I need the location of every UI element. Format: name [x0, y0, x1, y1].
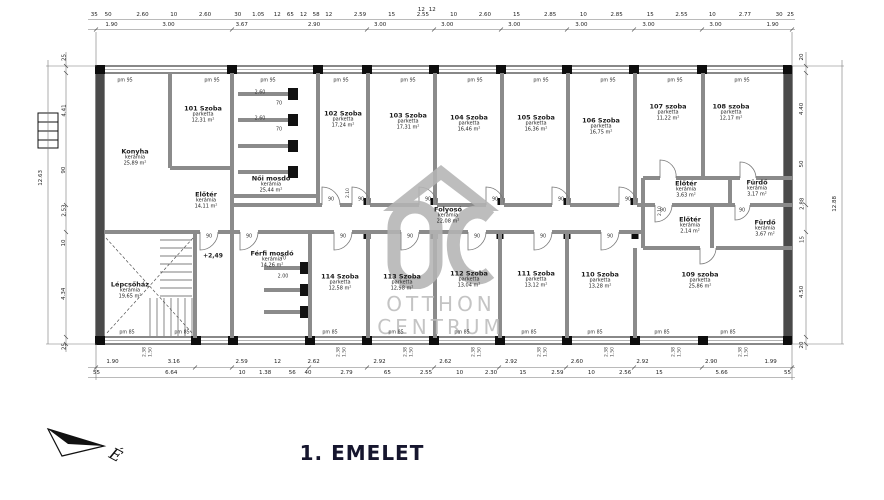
dimension-value: 4.40 — [755, 103, 849, 115]
window-parapet-label: pm 85 — [521, 331, 536, 336]
dimension-value: 2.56 — [596, 370, 655, 376]
room-label-109: 109 szoba parketta 25,86 m² — [682, 272, 719, 291]
dimension-value: 15 — [654, 370, 664, 376]
room-label-ferfi-mosdo: Férfi mosdó kerámia 14,26 m² — [250, 251, 293, 270]
dimension-value: 25 — [58, 340, 69, 352]
dimension-value: 2.62 — [282, 359, 345, 365]
door-width-label: 90 — [425, 198, 431, 203]
door-width-label: 90 — [358, 198, 364, 203]
room-label-101: 101 Szoba parketta 12,31 m² — [184, 106, 222, 125]
room-area: 13,12 m² — [517, 284, 555, 290]
dimension-value: 3.00 — [481, 22, 548, 28]
dimension-value: 2.88 — [770, 198, 833, 210]
sill-dim: 1.50 — [611, 347, 616, 357]
dimension-chain-bottom-2: 556.64101.3856402.79652.55102.30152.5910… — [88, 370, 796, 376]
dimension-value: 12 — [273, 359, 282, 365]
sill-dims: 2.38 1.50 — [739, 347, 750, 357]
dimension-value: 2.55 — [396, 12, 449, 18]
sill-dims: 2.38 1.50 — [605, 347, 616, 357]
door-width-label: 90 — [540, 235, 546, 240]
dimension-chain-top-1: 35502.60102.60301.0512651258122.59152.55… — [88, 12, 796, 18]
room-label-eloter-lower: Előtér kerámia 2,14 m² — [679, 217, 701, 236]
otthon-centrum-logo-icon — [366, 163, 516, 289]
stall-dim-label: 70 — [276, 128, 282, 133]
north-label: É — [105, 442, 126, 466]
dimension-chain-bottom-1: 1.903.162.59122.622.922.622.922.602.922.… — [88, 359, 796, 365]
room-label-113: 113 Szoba parketta 12,98 m² — [383, 274, 421, 293]
room-label-furdo-upper: Fürdő kerámia 3,17 m² — [746, 180, 767, 199]
floor-title: 1. EMELET — [262, 441, 462, 465]
dimension-value: 1.90 — [88, 22, 135, 28]
window-parapet-label: pm 95 — [204, 79, 219, 84]
window-parapet-label: pm 95 — [533, 79, 548, 84]
dimension-value: 50 — [794, 158, 810, 170]
dimension-value: 10 — [169, 12, 178, 18]
dimension-value: 1.99 — [745, 359, 796, 365]
window-parapet-label: pm 85 — [388, 331, 403, 336]
dimension-value: 15 — [518, 370, 528, 376]
dimension-value: 25 — [785, 12, 796, 18]
dimension-value: 15 — [798, 234, 807, 246]
sill-dim: 1.50 — [410, 347, 415, 357]
room-area: 3,63 m² — [675, 194, 697, 200]
sill-dim: 2.38 — [337, 347, 342, 357]
dimension-value: 2.90 — [281, 22, 346, 28]
dimension-value: 3.00 — [548, 22, 615, 28]
window-parapet-label: pm 95 — [400, 79, 415, 84]
window-parapet-label: pm 95 — [734, 79, 749, 84]
window-parapet-label: pm 95 — [117, 79, 132, 84]
north-arrow-icon: É — [42, 413, 142, 473]
dimension-value: 12 — [273, 12, 282, 18]
dimension-value: 30 — [773, 12, 785, 18]
room-area: 12,31 m² — [184, 119, 222, 125]
room-label-noi-mosdo: Női mosdó kerámia 25,44 m² — [252, 176, 291, 195]
room-area: 12,98 m² — [383, 287, 421, 293]
door-width-label: 90 — [407, 235, 413, 240]
dimension-value: 58 — [308, 12, 324, 18]
level-marker: +2,49 — [203, 253, 223, 260]
sill-dim: 2.38 — [472, 347, 477, 357]
door-height-label: 2.10 — [658, 206, 663, 216]
watermark: OTTHON CENTRUM — [366, 163, 516, 339]
sill-dim: 1.50 — [149, 347, 154, 357]
dimension-value: 2.55 — [655, 12, 708, 18]
dimension-value: 3.00 — [414, 22, 481, 28]
room-label-104: 104 Szoba parketta 16,46 m² — [450, 115, 488, 134]
sill-dim: 2.38 — [538, 347, 543, 357]
dimension-value: 1.05 — [244, 12, 273, 18]
dimension-value: 2.92 — [608, 359, 677, 365]
door-width-label: 90 — [739, 209, 745, 214]
dimension-value: 20 — [797, 339, 807, 351]
room-area: 19,65 m² — [111, 295, 149, 301]
dimension-value: 25 — [58, 52, 69, 64]
door-width-label: 90 — [492, 198, 498, 203]
dimension-value: 12 — [324, 12, 333, 18]
dimension-value: 55 — [88, 370, 105, 376]
room-area: 14,26 m² — [250, 264, 293, 270]
floor-plan-page: OTTHON CENTRUM Konyha kerámia 25,89 m² 1… — [0, 0, 884, 500]
sill-dim: 2.38 — [404, 347, 409, 357]
window-parapet-label: pm 85 — [174, 331, 189, 336]
window-parapet-label: pm 95 — [667, 79, 682, 84]
room-area: 14,11 m² — [195, 205, 218, 211]
dimension-value: 3.00 — [135, 22, 202, 28]
dimension-value: 15 — [646, 12, 655, 18]
dimension-value: 2.30 — [464, 370, 518, 376]
room-label-103: 103 Szoba parketta 17,31 m² — [389, 113, 427, 132]
sill-dims: 2.38 1.50 — [143, 347, 154, 357]
room-area: 22,08 m² — [434, 220, 462, 226]
sill-dim: 1.50 — [678, 347, 683, 357]
dimension-value: 2.92 — [477, 359, 546, 365]
dimension-value: 2.77 — [717, 12, 774, 18]
room-label-konyha: Konyha kerámia 25,89 m² — [121, 149, 148, 168]
sill-dims: 2.38 1.50 — [472, 347, 483, 357]
dimension-value: 2.55 — [397, 370, 455, 376]
dimension-value: 2.85 — [521, 12, 579, 18]
sill-dim: 1.50 — [544, 347, 549, 357]
dimension-value: 56 — [284, 370, 301, 376]
room-label-folyoso: Folyosó kerámia 22,08 m² — [434, 207, 462, 226]
dimension-value: 40 — [301, 370, 315, 376]
dimension-value: 2.90 — [677, 359, 745, 365]
dimension-chain-right: 204.40502.88154.5020 — [796, 52, 808, 350]
sill-dim: 1.50 — [343, 347, 348, 357]
sill-dim: 1.50 — [745, 347, 750, 357]
dimension-value: 10 — [579, 12, 588, 18]
room-label-107: 107 szoba parketta 11,22 m² — [650, 104, 687, 123]
dimension-value: 30 — [232, 12, 244, 18]
dimension-value: 10 — [238, 370, 247, 376]
window-parapet-label: pm 95 — [260, 79, 275, 84]
sill-dim: 2.38 — [672, 347, 677, 357]
door-width-label: 90 — [246, 235, 252, 240]
stall-dim-label: 70 — [276, 102, 282, 107]
dimension-value: 2.60 — [178, 12, 232, 18]
door-width-label: 90 — [474, 235, 480, 240]
dimension-value: 2.60 — [546, 359, 609, 365]
dimension-chain-top-2: 1.903.003.672.903.003.003.003.003.003.00… — [88, 22, 796, 28]
room-area: 25,86 m² — [682, 285, 719, 291]
sill-dim: 1.50 — [478, 347, 483, 357]
dimension-value: 10 — [587, 370, 596, 376]
room-label-112: 112 Szoba parketta 13,04 m² — [450, 271, 488, 290]
dimension-value: 2.85 — [588, 12, 646, 18]
watermark-line1: OTTHON — [366, 293, 516, 316]
dimension-value: 4.50 — [754, 286, 850, 298]
room-area: 3,17 m² — [746, 193, 767, 199]
room-label-furdo-lower: Fürdő kerámia 3,67 m² — [754, 220, 775, 239]
dimension-value: 12 — [299, 12, 308, 18]
sill-dims: 2.38 1.50 — [538, 347, 549, 357]
dimension-value: 50 — [101, 12, 116, 18]
overall-dimension-right: 12.88 — [832, 196, 838, 212]
room-area: 13,04 m² — [450, 284, 488, 290]
room-area: 17,24 m² — [324, 124, 362, 130]
dimension-value: 2.92 — [345, 359, 414, 365]
dimension-value: 2.59 — [528, 370, 587, 376]
sill-dims: 2.38 1.50 — [672, 347, 683, 357]
room-area: 16,36 m² — [517, 128, 555, 134]
dimension-value: 2.79 — [315, 370, 378, 376]
dimension-value: 3.00 — [347, 22, 414, 28]
window-parapet-label: pm 85 — [454, 331, 469, 336]
room-area: 3,67 m² — [754, 233, 775, 239]
room-area: 2,14 m² — [679, 230, 701, 236]
dimension-value: 3.00 — [615, 22, 682, 28]
sill-dims: 2.38 1.50 — [337, 347, 348, 357]
dimension-value: 3.67 — [202, 22, 281, 28]
stall-dim-label: 2.60 — [255, 91, 266, 96]
room-area: 13,28 m² — [581, 285, 619, 291]
door-width-label: 90 — [607, 235, 613, 240]
dimension-value: 55 — [779, 370, 796, 376]
stall-dim-label: 2.60 — [255, 117, 266, 122]
dimension-value: 2.59 — [210, 359, 272, 365]
door-height-label: 2.10 — [346, 188, 351, 198]
dimension-value: 65 — [378, 370, 397, 376]
door-width-label: 90 — [340, 235, 346, 240]
dimension-value: 10 — [455, 370, 464, 376]
dimension-value: 35 — [88, 12, 101, 18]
dimension-value: 90 — [52, 164, 76, 176]
dimension-value: 3.16 — [137, 359, 210, 365]
dimension-value: 10 — [60, 237, 68, 249]
room-area: 25,44 m² — [252, 189, 291, 195]
room-area: 12,58 m² — [321, 287, 359, 293]
watermark-line2: CENTRUM — [366, 316, 516, 339]
dimension-value: 10 — [708, 12, 717, 18]
dimension-value: 2.53 — [35, 205, 92, 217]
room-label-lepcsohaz: Lépcsőház kerámia 19,65 m² — [111, 282, 149, 301]
room-area: 17,31 m² — [389, 126, 427, 132]
dimension-value: 65 — [282, 12, 299, 18]
door-width-label: 90 — [206, 235, 212, 240]
overall-dimension-left: 12.63 — [38, 170, 44, 186]
room-label-eloter-left: Előtér kerámia 14,11 m² — [195, 192, 218, 211]
sill-dim: 2.38 — [739, 347, 744, 357]
door-width-label: 90 — [558, 198, 564, 203]
window-parapet-label: pm 85 — [322, 331, 337, 336]
window-parapet-label: pm 85 — [654, 331, 669, 336]
room-label-110: 110 Szoba parketta 13,28 m² — [581, 272, 619, 291]
dimension-value: 2.60 — [116, 12, 170, 18]
dimension-value: 2.62 — [414, 359, 477, 365]
room-area: 16,75 m² — [582, 131, 620, 137]
window-parapet-label: pm 85 — [119, 331, 134, 336]
dimension-value: 6.64 — [105, 370, 238, 376]
room-area: 25,89 m² — [121, 162, 148, 168]
window-parapet-label: pm 95 — [600, 79, 615, 84]
north-arrow: É — [42, 413, 142, 477]
room-label-105: 105 Szoba parketta 16,36 m² — [517, 115, 555, 134]
dimension-value: 5.66 — [664, 370, 779, 376]
room-label-106: 106 Szoba parketta 16,75 m² — [582, 118, 620, 137]
window-parapet-label: pm 95 — [467, 79, 482, 84]
room-label-111: 111 Szoba parketta 13,12 m² — [517, 271, 555, 290]
window-parapet-label: pm 85 — [720, 331, 735, 336]
room-area: 11,22 m² — [650, 117, 687, 123]
dimension-value: 10 — [449, 12, 458, 18]
dimension-value: 20 — [797, 51, 807, 63]
dimension-value: 4.34 — [17, 288, 111, 300]
door-width-label: 90 — [328, 198, 334, 203]
stall-dim-label: 70 — [280, 257, 286, 262]
sill-dim: 2.38 — [143, 347, 148, 357]
dimension-value: 3.00 — [682, 22, 749, 28]
room-label-114: 114 Szoba parketta 12,58 m² — [321, 274, 359, 293]
sill-dims: 2.38 1.50 — [404, 347, 415, 357]
dimension-value: 1.38 — [246, 370, 283, 376]
dimension-value: 2.59 — [333, 12, 387, 18]
window-parapet-label: pm 85 — [587, 331, 602, 336]
dimension-value: 2.60 — [458, 12, 512, 18]
dimension-chain-left: 254.41902.53104.3425 — [58, 52, 70, 352]
room-label-108: 108 szoba parketta 12,17 m² — [713, 104, 750, 123]
room-label-102: 102 Szoba parketta 17,24 m² — [324, 111, 362, 130]
dimension-value: 1.90 — [88, 359, 137, 365]
room-label-eloter-upper: Előtér kerámia 3,63 m² — [675, 181, 697, 200]
door-width-label: 90 — [625, 198, 631, 203]
dimension-value: 1.90 — [749, 22, 796, 28]
window-parapet-label: pm 95 — [333, 79, 348, 84]
dimension-value: 15 — [387, 12, 396, 18]
sill-dim: 2.38 — [605, 347, 610, 357]
room-area: 12,17 m² — [713, 117, 750, 123]
dimension-value: 15 — [512, 12, 521, 18]
room-area: 16,46 m² — [450, 128, 488, 134]
dimension-value: 4.41 — [16, 105, 111, 117]
stall-dim-label: 2.00 — [278, 275, 289, 280]
